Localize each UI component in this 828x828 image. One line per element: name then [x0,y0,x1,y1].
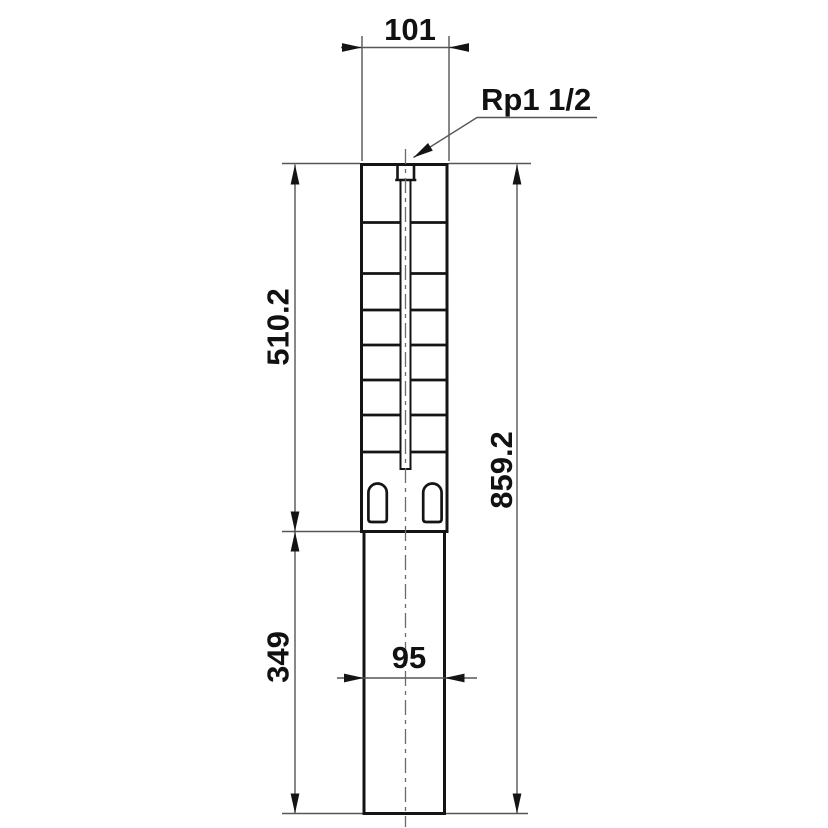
dim-text-upper-height: 510.2 [261,288,296,366]
pump-upper-body [362,165,448,532]
pump-dimension-drawing: 101 Rp1 1/2 510.2 349 859.2 95 [0,0,828,828]
intake-slot-left [368,484,386,522]
arrowhead-down-left-bottom [291,794,300,814]
arrowhead-down-left-mid [291,512,300,532]
intake-slot-right [423,484,441,522]
arrowhead-down-right-bottom [513,794,522,814]
arrowhead-thread-leader [414,143,433,158]
dim-text-bottom-width: 95 [392,640,426,675]
arrowhead-up-left-mid [291,532,300,552]
dim-text-lower-height: 349 [261,631,296,683]
body-outline-group [362,165,448,814]
arrowhead-left-top-width [449,43,469,52]
arrowhead-right-bottom-width [344,674,364,683]
arrowhead-up-right-top [513,165,522,185]
leader-line-thread [414,118,598,158]
thread-connection-label: Rp1 1/2 [481,82,591,117]
arrowhead-left-bottom-width [445,674,465,683]
drawing-canvas: 101 Rp1 1/2 510.2 349 859.2 95 [0,0,828,828]
dim-text-top-width: 101 [384,12,436,47]
arrowhead-right-top-width [342,43,362,52]
arrowhead-up-left-top [291,165,300,185]
dim-text-total-height: 859.2 [484,431,519,509]
